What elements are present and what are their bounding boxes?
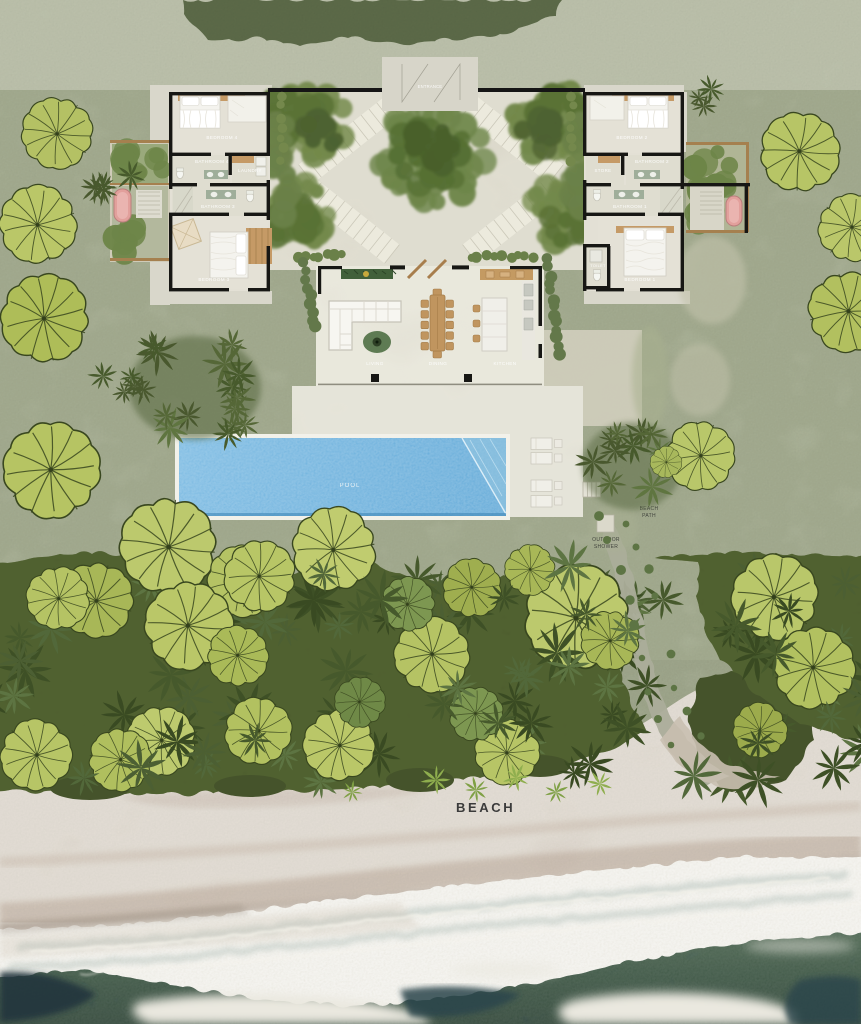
svg-text:BEDROOM 2: BEDROOM 2 xyxy=(616,135,647,140)
svg-text:BEACH: BEACH xyxy=(456,800,515,815)
svg-text:STORE: STORE xyxy=(594,168,611,173)
svg-text:LAUNDRY: LAUNDRY xyxy=(238,168,262,173)
svg-text:BATHROOM 2: BATHROOM 2 xyxy=(635,159,669,164)
svg-text:POOL: POOL xyxy=(340,483,361,489)
svg-text:LIVING: LIVING xyxy=(366,361,383,366)
svg-text:DINING: DINING xyxy=(429,361,448,366)
svg-text:BATHROOM 3: BATHROOM 3 xyxy=(201,204,235,209)
svg-text:KITCHEN: KITCHEN xyxy=(494,361,517,366)
svg-text:BATHROOM 4: BATHROOM 4 xyxy=(195,159,229,164)
svg-text:SHOWER: SHOWER xyxy=(594,544,618,550)
svg-text:BEDROOM 1: BEDROOM 1 xyxy=(624,277,655,282)
svg-text:BEDROOM 4: BEDROOM 4 xyxy=(206,135,237,140)
svg-text:PATH: PATH xyxy=(642,513,656,519)
svg-text:BEDROOM 3: BEDROOM 3 xyxy=(198,277,229,282)
svg-text:TOILET: TOILET xyxy=(590,264,606,268)
svg-text:BATHROOM 1: BATHROOM 1 xyxy=(613,204,647,209)
svg-text:ENTRANCE: ENTRANCE xyxy=(418,84,443,89)
